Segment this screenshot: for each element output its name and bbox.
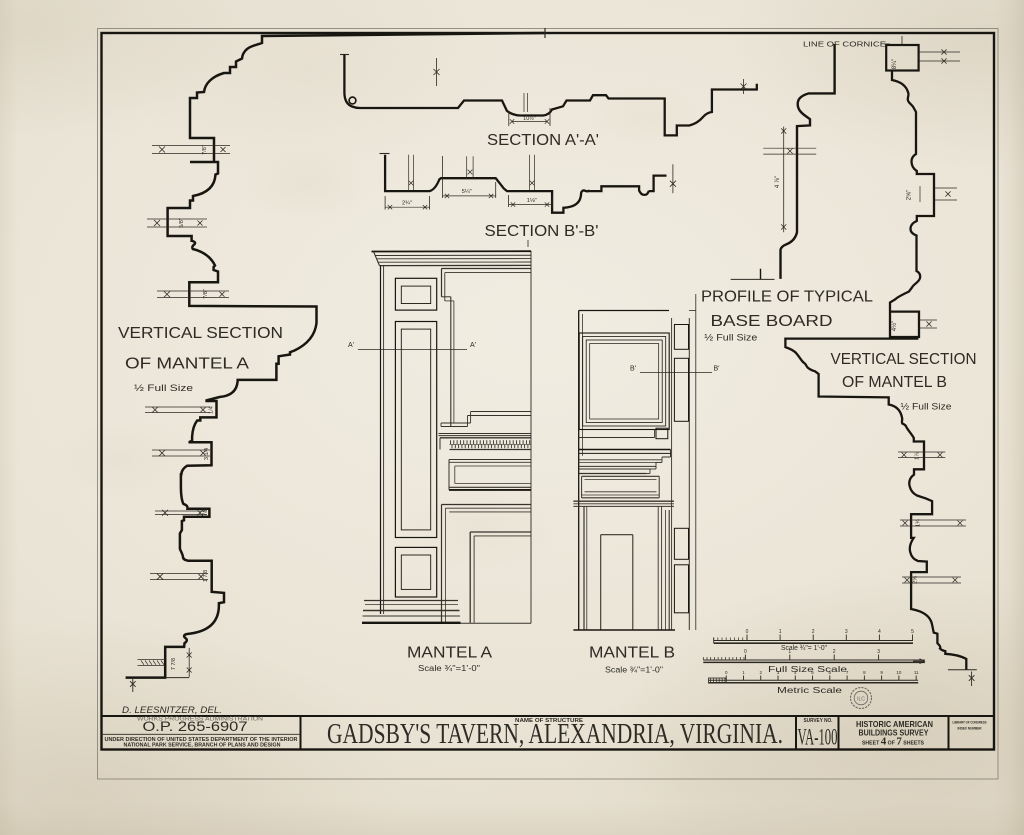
svg-text:3: 3 [877, 649, 880, 655]
svg-text:PROFILE OF TYPICAL: PROFILE OF TYPICAL [701, 289, 873, 306]
svg-text:D. LEESNITZER, DEL.: D. LEESNITZER, DEL. [122, 705, 222, 716]
svg-text:SECTION B'-B': SECTION B'-B' [485, 223, 599, 240]
svg-text:7/8": 7/8" [203, 289, 209, 299]
svg-text:SURVEY NO.: SURVEY NO. [804, 718, 834, 724]
svg-text:NATIONAL PARK SERVICE, BRANCH: NATIONAL PARK SERVICE, BRANCH OF PLANS A… [124, 742, 281, 748]
svg-text:4½": 4½" [891, 321, 898, 331]
svg-text:5¼": 5¼" [462, 189, 472, 195]
svg-text:7: 7 [846, 670, 849, 675]
svg-text:2¾": 2¾" [402, 201, 412, 207]
svg-text:7/8": 7/8" [202, 145, 208, 155]
svg-text:10: 10 [896, 670, 902, 675]
svg-text:1: 1 [742, 670, 745, 675]
svg-text:B': B' [713, 366, 719, 373]
svg-text:4: 4 [878, 629, 881, 635]
svg-text:2⅝: 2⅝ [913, 576, 919, 584]
svg-text:9: 9 [880, 670, 883, 675]
svg-text:2: 2 [833, 649, 836, 655]
svg-text:VA-100: VA-100 [798, 725, 838, 750]
svg-text:VERTICAL SECTION: VERTICAL SECTION [118, 325, 283, 342]
svg-text:VERTICAL SECTION: VERTICAL SECTION [831, 351, 977, 368]
svg-text:1/4: 1/4 [209, 406, 215, 414]
svg-text:8: 8 [863, 670, 866, 675]
svg-text:5: 5 [911, 629, 914, 635]
svg-text:3: 3 [845, 629, 848, 635]
svg-text:2: 2 [812, 629, 815, 635]
svg-text:LIBRARY OF CONGRESS: LIBRARY OF CONGRESS [953, 720, 987, 725]
svg-text:1⅞: 1⅞ [915, 452, 921, 460]
svg-text:INDEX NUMBER: INDEX NUMBER [958, 726, 982, 731]
svg-text:LINE OF CORNICE: LINE OF CORNICE [803, 40, 886, 49]
svg-text:½ Full Size: ½ Full Size [704, 333, 757, 344]
svg-text:5/8": 5/8" [179, 218, 185, 228]
svg-text:1⅛": 1⅛" [527, 198, 537, 204]
svg-text:B': B' [630, 366, 636, 373]
svg-text:3 1/4: 3 1/4 [204, 448, 210, 460]
svg-text:0: 0 [725, 670, 728, 675]
svg-text:1¼: 1¼ [916, 519, 922, 527]
svg-text:11: 11 [914, 670, 919, 675]
svg-text:OF MANTEL A: OF MANTEL A [125, 356, 249, 373]
svg-text:7 7/8: 7 7/8 [171, 658, 177, 670]
svg-text:A': A' [470, 342, 476, 349]
svg-text:O.P. 265-6907: O.P. 265-6907 [143, 719, 248, 734]
svg-text:Scale ¾"=1'-0": Scale ¾"=1'-0" [418, 664, 480, 673]
svg-text:7/8: 7/8 [203, 508, 209, 516]
svg-text:BASE BOARD: BASE BOARD [711, 313, 833, 330]
svg-text:GADSBY'S TAVERN, ALEXANDRIA, V: GADSBY'S TAVERN, ALEXANDRIA, VIRGINIA. [327, 719, 783, 750]
svg-text:8¼": 8¼" [892, 59, 898, 69]
svg-text:Metric Scale: Metric Scale [777, 686, 843, 695]
svg-text:1: 1 [779, 629, 782, 635]
svg-text:½ Full Size: ½ Full Size [134, 383, 193, 394]
svg-text:1: 1 [788, 649, 791, 655]
svg-text:A': A' [348, 342, 354, 349]
svg-text:Scale ¾"=1'-0": Scale ¾"=1'-0" [605, 666, 663, 675]
svg-text:MANTEL B: MANTEL B [589, 645, 675, 662]
svg-text:BUILDINGS SURVEY: BUILDINGS SURVEY [859, 728, 929, 738]
svg-text:ILC: ILC [857, 697, 865, 703]
svg-text:0: 0 [744, 649, 747, 655]
svg-text:2: 2 [759, 670, 762, 675]
svg-text:Full Size Scale: Full Size Scale [768, 665, 848, 674]
svg-text:OF MANTEL B: OF MANTEL B [842, 374, 947, 391]
svg-text:10½": 10½" [523, 115, 536, 122]
svg-text:4 ⅞": 4 ⅞" [775, 176, 781, 188]
svg-text:0: 0 [746, 629, 749, 635]
svg-text:2⅝": 2⅝" [907, 190, 913, 200]
svg-text:½ Full Size: ½ Full Size [901, 402, 952, 413]
svg-text:MANTEL A: MANTEL A [407, 645, 492, 662]
svg-text:1 7/8: 1 7/8 [203, 570, 209, 582]
svg-text:SECTION A'-A': SECTION A'-A' [487, 132, 599, 149]
